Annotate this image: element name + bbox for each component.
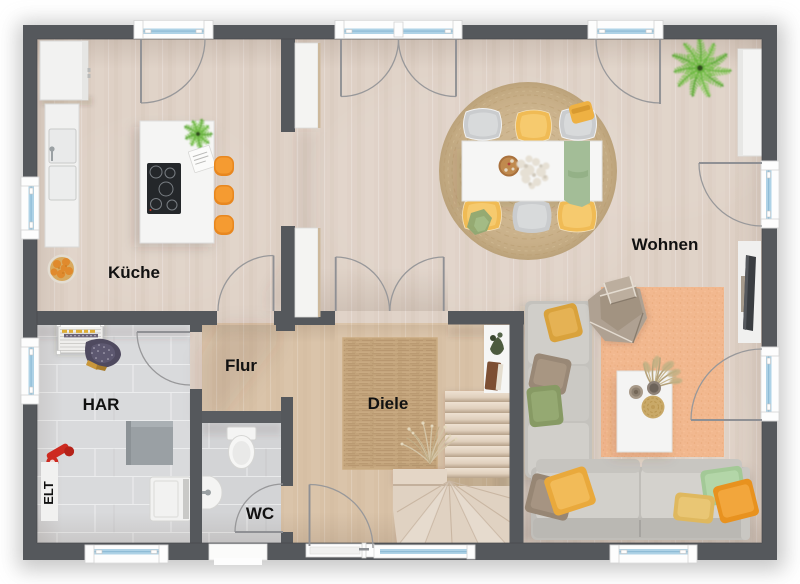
svg-text:WC: WC (246, 504, 274, 523)
svg-text:Flur: Flur (225, 356, 257, 375)
svg-text:Wohnen: Wohnen (632, 235, 699, 254)
svg-text:HAR: HAR (83, 395, 120, 414)
svg-text:Küche: Küche (108, 263, 160, 282)
svg-text:Diele: Diele (368, 394, 409, 413)
svg-text:ELT: ELT (41, 481, 56, 505)
